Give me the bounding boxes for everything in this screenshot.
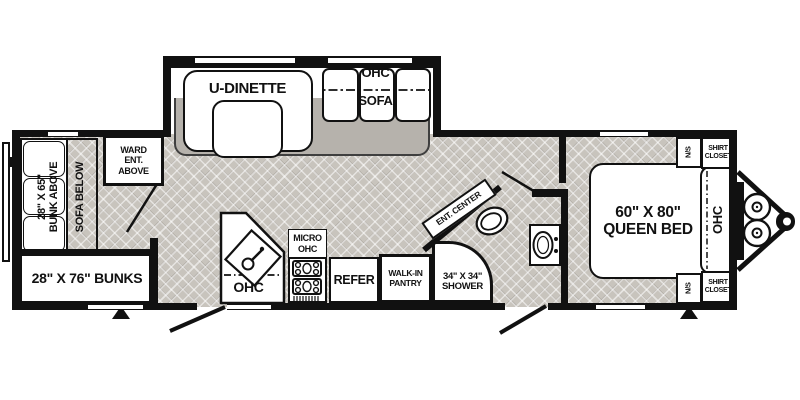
wall-bath-stub — [532, 189, 568, 197]
bunks-label: 28" X 76" BUNKS — [23, 271, 151, 287]
wall-top-right — [435, 130, 737, 137]
slide-sofa-label: SOFA — [348, 94, 403, 109]
range-vent-icon — [294, 296, 318, 301]
bunkroom-door — [127, 184, 157, 232]
wall-front — [729, 130, 737, 310]
window — [600, 131, 648, 137]
window — [48, 131, 78, 137]
slideout-window — [328, 58, 412, 63]
window — [88, 304, 143, 310]
wall-bath-upper — [559, 137, 566, 183]
slideout-wall-right — [433, 56, 441, 137]
wardrobe-entry: WARD ENT. ABOVE — [103, 135, 164, 186]
slide-ohc-label: OHC — [348, 66, 403, 81]
window — [227, 304, 271, 310]
dinette-label: U-DINETTE — [190, 81, 305, 98]
propane-valve-dot — [756, 232, 758, 234]
bunk-size-label: 28" X 65" BUNK ABOVE — [36, 142, 62, 252]
window — [596, 304, 645, 310]
kitchen-ohc-label: OHC — [221, 280, 276, 296]
bath-faucet-icon — [554, 237, 558, 241]
propane-valve-dot — [756, 206, 758, 208]
hitch-ball-icon — [783, 218, 791, 226]
rv-floorplan: MICRO OHC REFER WALK-IN PANTRY 34" X 34"… — [0, 0, 800, 400]
entry-door-main — [170, 307, 225, 331]
entry-door-bedroom — [500, 306, 546, 333]
bunk-size-line: 28" X 65" — [36, 142, 48, 252]
wall-rear — [12, 130, 20, 310]
sofa-below-label: SOFA BELOW — [74, 142, 90, 252]
slideout-wall-left — [163, 56, 171, 137]
slideout-window — [195, 58, 295, 63]
ward-label-line1: WARD — [120, 145, 146, 155]
wall-bedroom — [561, 191, 568, 303]
bath-faucet-icon — [554, 249, 558, 253]
bed-ohc-label: OHC — [711, 190, 727, 250]
faucet-knob-icon — [260, 247, 264, 251]
ward-label-line3: ABOVE — [118, 166, 149, 176]
stove-burners-icon — [293, 261, 321, 294]
ward-label-line2: ENT. — [124, 155, 142, 165]
wall-bunkroom — [150, 238, 158, 310]
bunk-above-line: BUNK ABOVE — [48, 142, 60, 252]
